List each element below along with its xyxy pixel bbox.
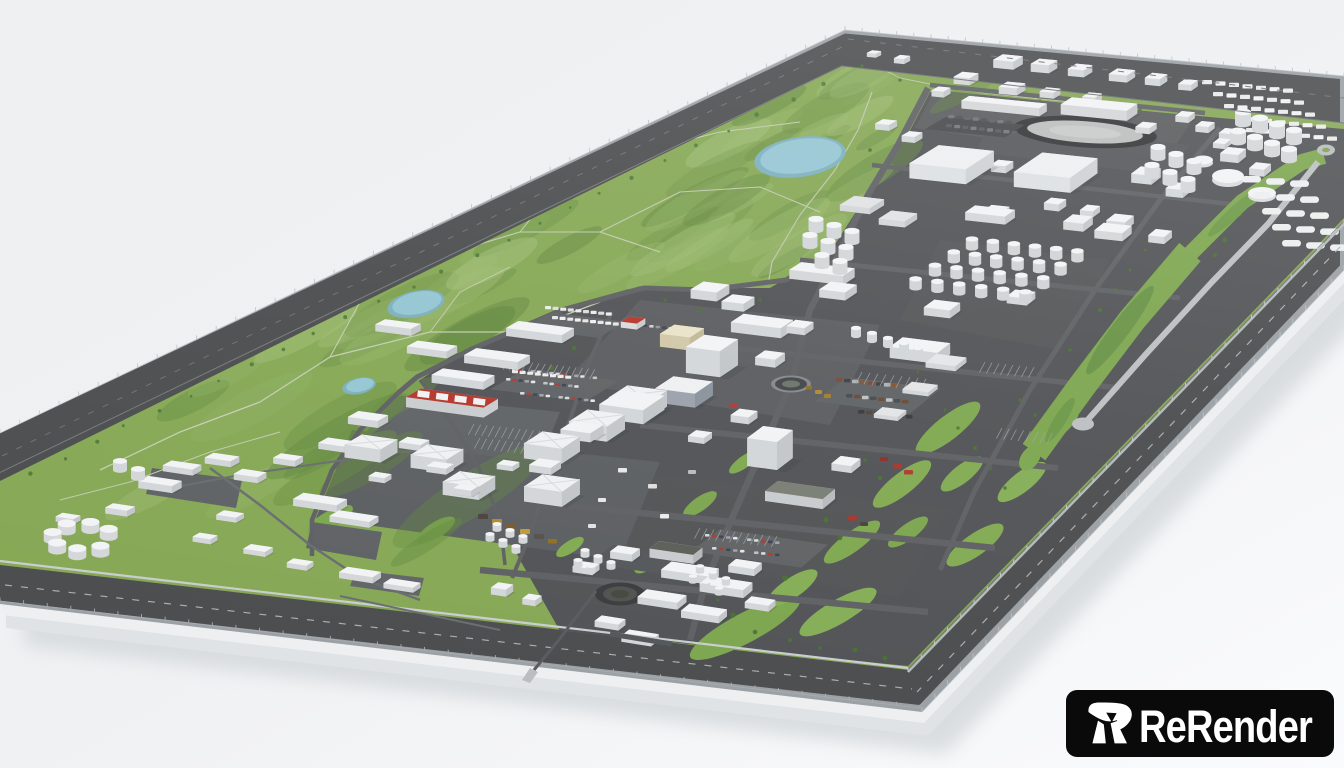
svg-text:ReRender: ReRender [1139, 701, 1312, 752]
